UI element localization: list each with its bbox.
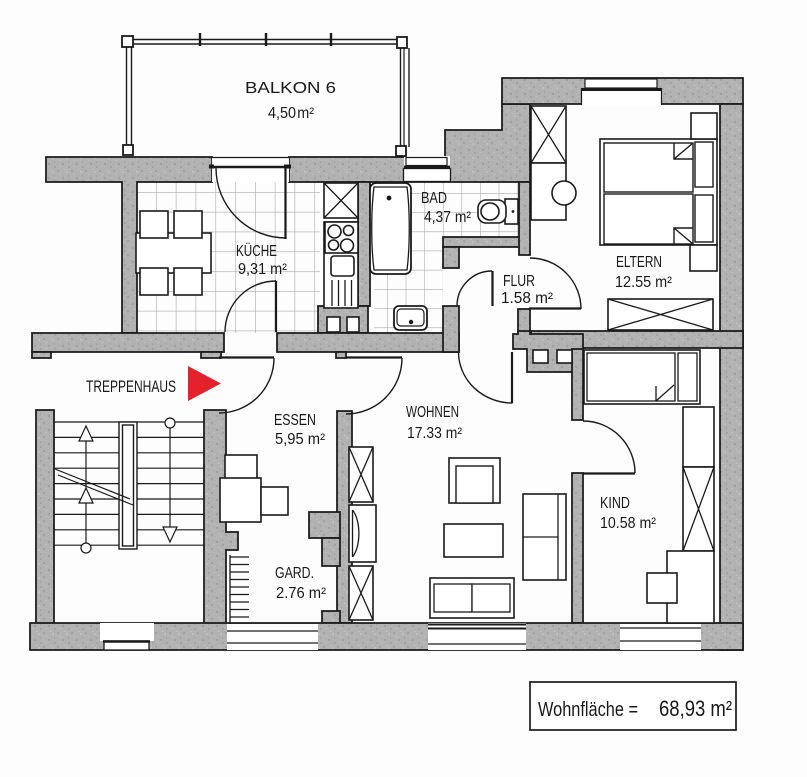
svg-text:ELTERN: ELTERN <box>616 254 662 271</box>
svg-text:5,95 m²: 5,95 m² <box>275 431 325 448</box>
svg-text:BAD: BAD <box>421 190 447 207</box>
svg-text:17.33 m²: 17.33 m² <box>407 425 462 442</box>
svg-text:FLUR: FLUR <box>503 273 535 290</box>
svg-text:10.58 m²: 10.58 m² <box>600 515 656 532</box>
svg-text:ESSEN: ESSEN <box>274 412 316 429</box>
svg-text:9,31 m²: 9,31 m² <box>238 261 287 278</box>
svg-text:WOHNEN: WOHNEN <box>406 404 459 421</box>
svg-text:1.58 m²: 1.58 m² <box>501 290 553 307</box>
svg-text:2.76 m²: 2.76 m² <box>276 585 326 602</box>
svg-text:68,93 m²: 68,93 m² <box>659 696 732 721</box>
svg-text:TREPPENHAUS: TREPPENHAUS <box>86 378 176 396</box>
svg-text:KÜCHE: KÜCHE <box>236 242 277 260</box>
svg-text:Wohnfläche =: Wohnfläche = <box>538 698 638 721</box>
svg-text:4,50 m²: 4,50 m² <box>268 105 314 122</box>
svg-text:4,37 m²: 4,37 m² <box>424 209 471 226</box>
svg-text:GARD.: GARD. <box>275 565 314 582</box>
svg-text:KIND: KIND <box>600 495 630 512</box>
svg-text:BALKON 6: BALKON 6 <box>245 80 336 97</box>
svg-text:12.55 m²: 12.55 m² <box>615 274 672 291</box>
